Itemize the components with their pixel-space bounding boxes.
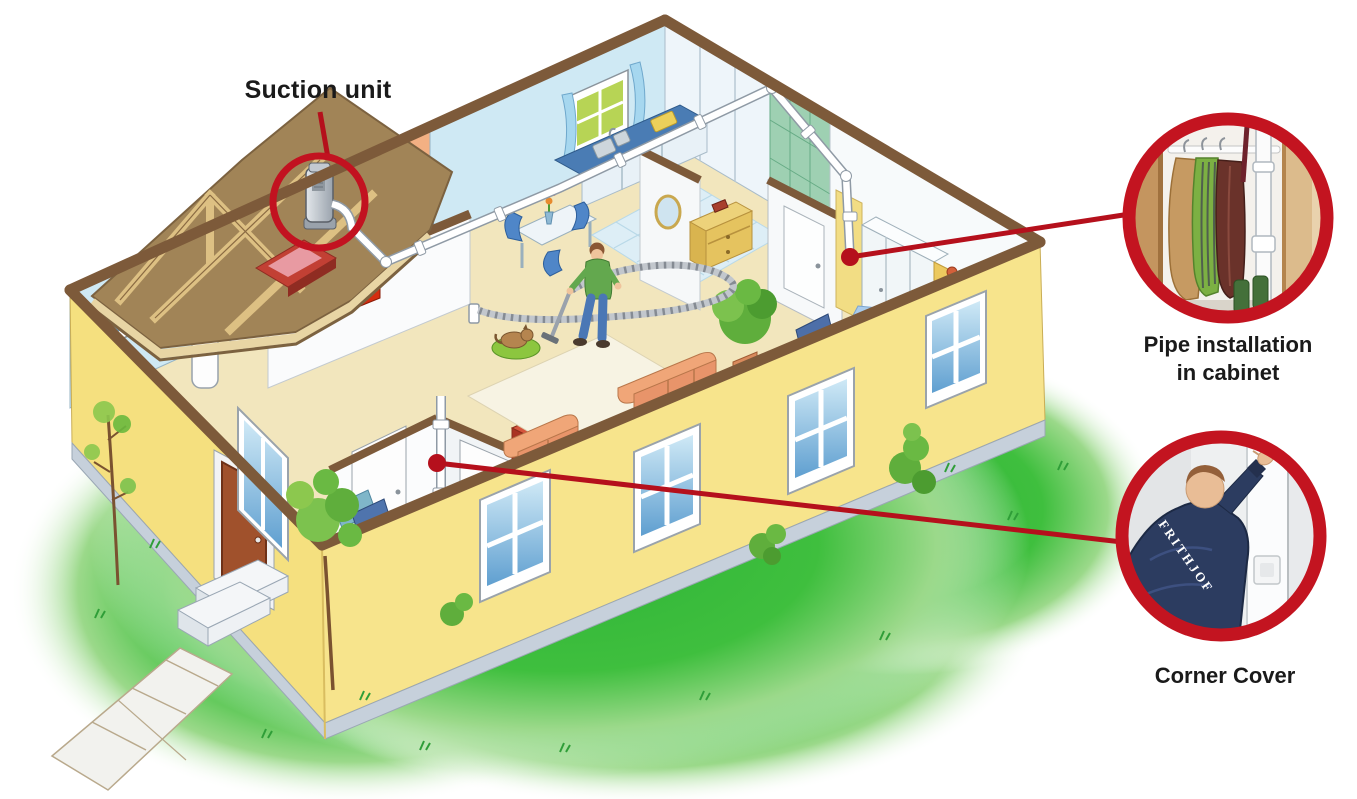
pipe-cabinet-caption-line1: Pipe installation — [1078, 331, 1357, 359]
inset-photo-pipe-cabinet — [1128, 116, 1332, 322]
person-torso — [585, 259, 612, 299]
suction-unit-label: Suction unit — [245, 76, 392, 105]
illustration-canvas: FRITHJOF Suction unit Pipe installation … — [0, 0, 1357, 799]
inset-photo-corner-cover: FRITHJOF — [1121, 436, 1325, 640]
pipe-cabinet-caption-line2: in cabinet — [1078, 359, 1357, 387]
dining-chair — [505, 212, 522, 241]
oval-mirror — [656, 196, 680, 228]
pipe-callout-dot — [841, 248, 859, 266]
pipe-cabinet-caption: Pipe installation in cabinet — [1078, 331, 1357, 387]
wall-socket — [1254, 556, 1280, 584]
corner-cover-caption: Corner Cover — [1075, 662, 1357, 690]
corner-callout-dot — [428, 454, 446, 472]
